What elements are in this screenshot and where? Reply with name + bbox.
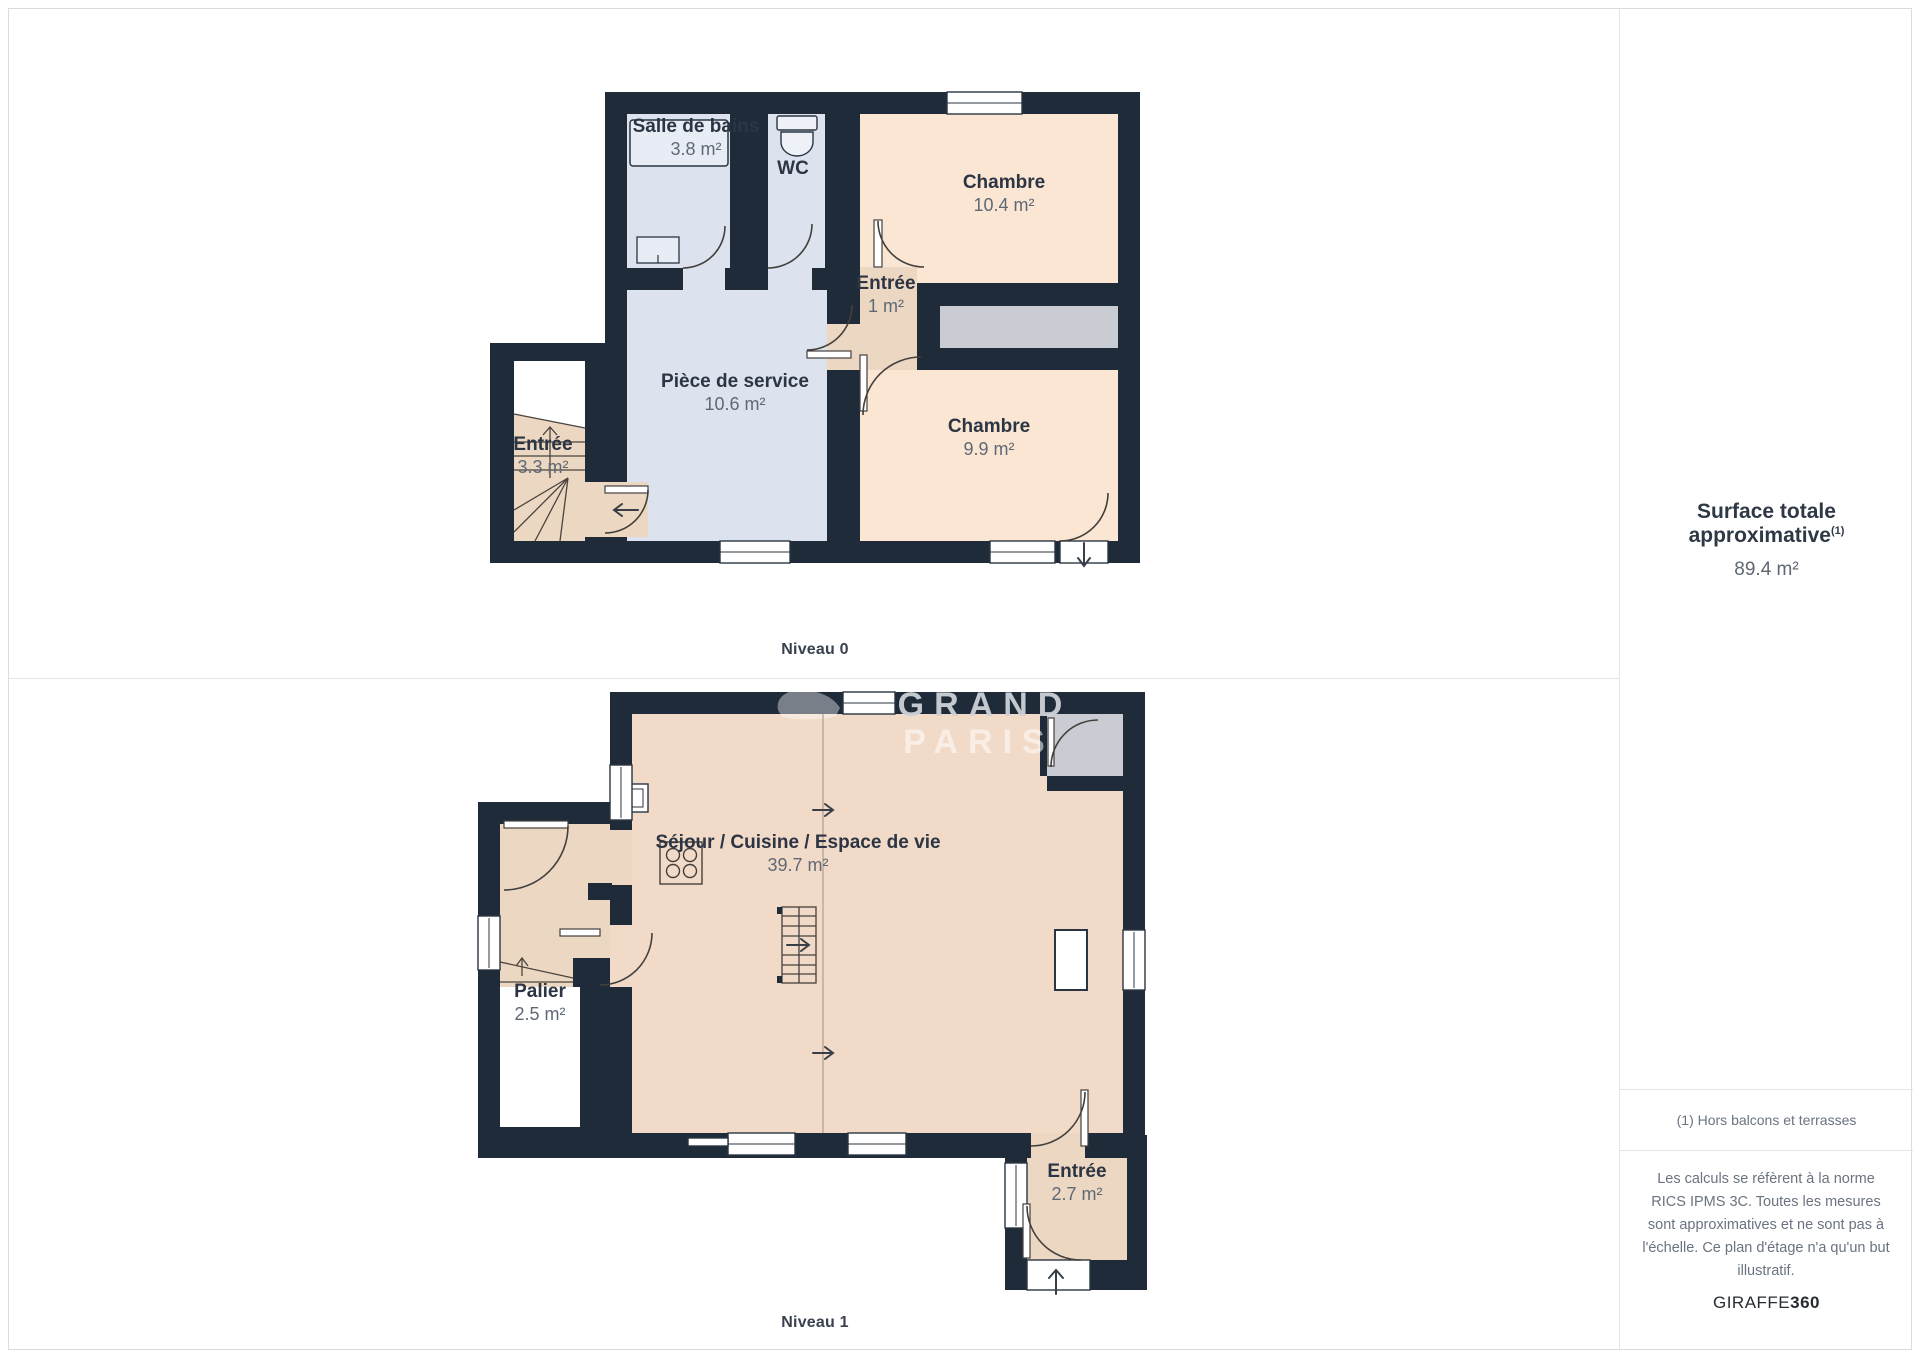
window-slit — [688, 1138, 728, 1146]
door-arc-vestibule — [605, 490, 648, 533]
door-arc-entree-top — [1031, 1092, 1085, 1146]
door-arc-vestibule — [504, 826, 568, 890]
door-leaf-vestibule — [504, 821, 568, 828]
door-leaf-service — [807, 351, 851, 358]
surface-footnote: (1) Hors balcons et terrasses — [1620, 1089, 1913, 1151]
label-chambre-1: Chambre 10.4 m² — [963, 172, 1045, 216]
plan0-overlay — [480, 80, 1160, 580]
stairs-direction-arrow — [787, 939, 809, 951]
chimney-niche — [1055, 930, 1087, 990]
label-palier: Palier 2.5 m² — [514, 981, 566, 1025]
door-arc-chambre1 — [878, 221, 924, 267]
door-arc-service — [807, 305, 852, 350]
disclaimer-text: Les calculs se réfèrent à la norme RICS … — [1641, 1168, 1891, 1283]
surface-footnote-marker: (1) — [1831, 525, 1844, 537]
label-wc: WC — [777, 158, 809, 180]
surface-title: Surface totale approximative(1) — [1620, 500, 1913, 548]
label-sejour: Séjour / Cuisine / Espace de vie 39.7 m² — [655, 832, 940, 876]
toilet-icon — [777, 116, 817, 156]
giraffe360-logo: GIRAFFE360 — [1620, 1293, 1913, 1313]
plan-niveau-1: GRAND PARIS Séjour / Cuisine / Espace de… — [460, 680, 1160, 1300]
door-leaf-entrance — [1023, 1204, 1030, 1258]
level-label-1: Niveau 1 — [781, 1314, 848, 1332]
door-arc-exterior — [1060, 493, 1108, 541]
floorplan-page: Salle de bains 3.8 m² WC Chambre 10.4 m²… — [0, 0, 1920, 1358]
door-arc-wc — [768, 224, 812, 268]
label-entree-1: Entrée 1 m² — [856, 273, 915, 317]
label-entree-bas: Entrée 2.7 m² — [1047, 1161, 1106, 1205]
level-label-0: Niveau 0 — [781, 641, 848, 659]
label-piece-de-service: Pièce de service 10.6 m² — [661, 371, 809, 415]
watermark-line2: PARIS — [903, 723, 1054, 762]
sidebar: Surface totale approximative(1) 89.4 m² … — [1619, 8, 1913, 1350]
plan-niveau-0: Salle de bains 3.8 m² WC Chambre 10.4 m²… — [480, 80, 1160, 580]
door-arc-sdb — [683, 226, 725, 268]
stairs-exit-arrow-left — [614, 504, 638, 516]
watermark-line1: GRAND — [898, 686, 1073, 725]
entrance-door-gap — [1027, 1260, 1090, 1290]
door-arc-terrace — [1051, 720, 1098, 767]
label-salle-de-bains: Salle de bains 3.8 m² — [633, 116, 760, 160]
label-chambre-2: Chambre 9.9 m² — [948, 416, 1030, 460]
door-arc-chambre2 — [863, 357, 921, 415]
landing-lines — [500, 958, 573, 982]
surface-summary: Surface totale approximative(1) 89.4 m² — [1620, 500, 1913, 581]
staircase-icon — [777, 907, 816, 983]
door-leaf-palier — [560, 929, 600, 936]
surface-value: 89.4 m² — [1620, 559, 1913, 581]
plans-divider — [8, 678, 1619, 679]
door-leaf-vestibule — [605, 486, 648, 493]
door-arc-palier — [600, 933, 652, 985]
door-arc-entrance — [1027, 1206, 1081, 1260]
label-entree-stairs: Entrée 3.3 m² — [513, 434, 572, 478]
watermark-logo — [778, 690, 840, 720]
